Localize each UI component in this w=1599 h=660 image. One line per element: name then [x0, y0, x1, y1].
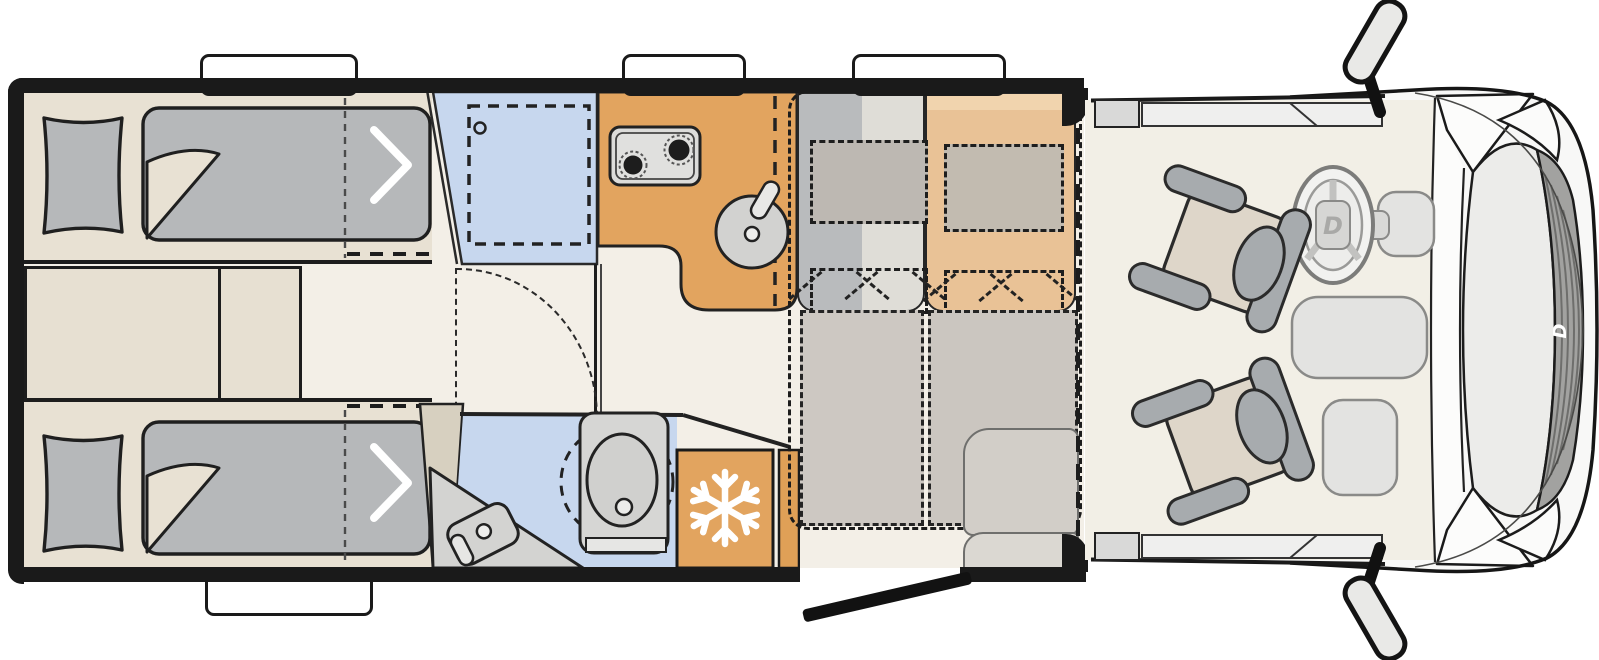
partition-wall-inner	[600, 264, 602, 420]
burner	[624, 156, 643, 175]
entrance-bench	[963, 428, 1079, 536]
door-sill-top	[1095, 100, 1139, 127]
glovebox	[1323, 400, 1397, 495]
overhead-locker-dash-top	[347, 252, 433, 256]
motorhome-floorplan: D D	[0, 0, 1599, 660]
cabinet-divider	[218, 266, 221, 402]
hood	[1463, 144, 1555, 517]
cab-front: D D	[1085, 0, 1599, 660]
bed-edge-line-top	[20, 260, 432, 264]
center-console	[1292, 297, 1427, 378]
single-bed-bottom	[22, 400, 432, 568]
pillow	[44, 118, 122, 233]
cab-junction-dash	[1076, 100, 1080, 556]
toilet-base	[586, 538, 666, 552]
door-sill-bottom	[1095, 533, 1139, 560]
wall-bottom	[8, 567, 800, 582]
shower-cabin	[424, 88, 604, 268]
door-window-top	[1142, 103, 1382, 126]
washroom	[414, 398, 800, 570]
bed-edge-line-bottom	[20, 398, 432, 402]
wall-left	[8, 78, 24, 584]
wall-top	[8, 78, 1084, 93]
door-window-bottom	[1142, 535, 1382, 558]
pillow	[44, 436, 122, 551]
toilet-flush	[616, 499, 632, 515]
washroom-wall-diagonal	[683, 415, 790, 447]
steering-logo: D	[1323, 212, 1343, 240]
shower-drain	[475, 123, 486, 134]
grille-logo: D	[1550, 323, 1571, 338]
entrance-door-open	[802, 571, 973, 622]
sink-drain	[745, 227, 759, 241]
shower-floor	[433, 92, 597, 264]
burner	[669, 140, 690, 161]
bedside-step-cabinet	[24, 266, 302, 402]
kitchen-block	[595, 88, 805, 340]
single-bed-top	[22, 92, 432, 264]
